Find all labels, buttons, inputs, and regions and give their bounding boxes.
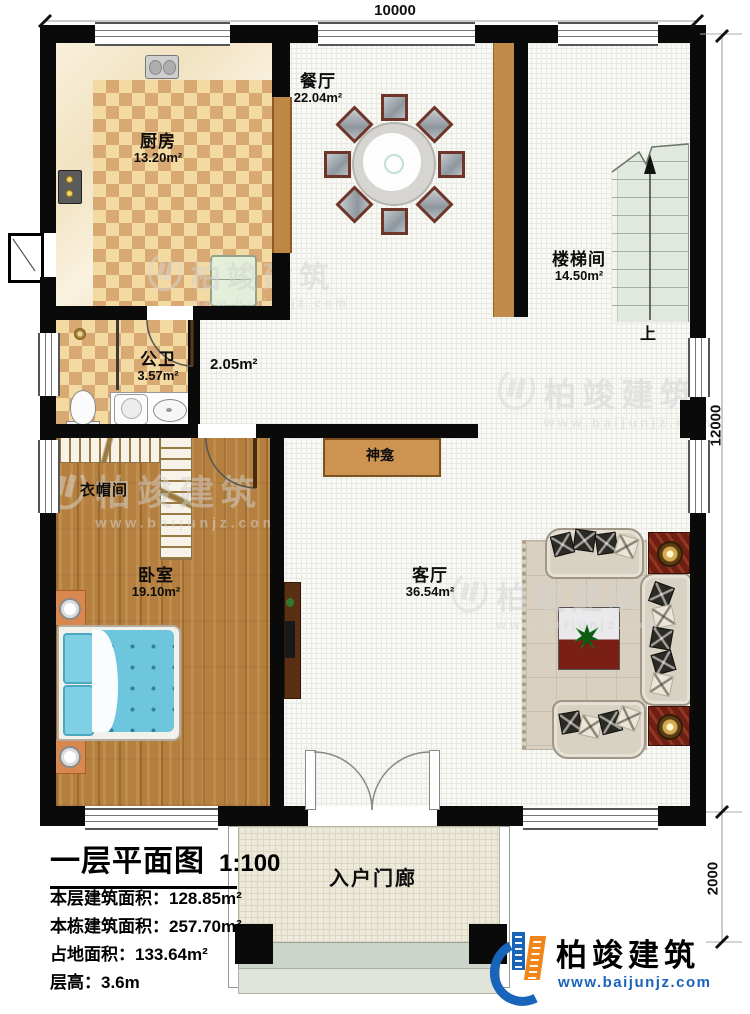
room-label-bedroom: 卧室 19.10m² (116, 566, 196, 600)
toilet-bowl (70, 390, 96, 425)
window (318, 22, 475, 46)
wall-pier (680, 400, 690, 438)
kitchen-sink (145, 55, 179, 79)
flue-box (8, 233, 44, 283)
room-label-kitchen: 厨房 13.20m² (118, 132, 198, 166)
stat-line: 占地面积：133.64m² (50, 940, 208, 965)
nightstand-lamp-2 (59, 746, 81, 768)
table-lamp (657, 714, 683, 740)
staircase (612, 143, 689, 322)
brand-website: www.baijunjz.com (558, 974, 711, 991)
bed-pillow-2 (63, 685, 94, 736)
room-area: 36.54m² (390, 585, 470, 600)
wall-segment (690, 25, 706, 338)
wall-segment (218, 806, 308, 826)
stat-line: 本栋建筑面积：257.70m² (50, 912, 242, 937)
washing-machine (114, 394, 148, 425)
sink-drain (166, 408, 172, 412)
stat-line: 本层建筑面积：128.85m² (50, 884, 242, 909)
kitchen-sliding-door (272, 97, 292, 253)
wardrobe (160, 435, 192, 560)
hallway-area-label: 2.05m² (210, 357, 258, 374)
nightstand-1 (52, 590, 86, 626)
sofa-pillow (573, 529, 597, 553)
wall-segment (690, 513, 706, 826)
window (38, 333, 60, 396)
washer-door (121, 398, 142, 419)
room-name: 公卫 (120, 350, 196, 369)
stairs-up-label: 上 (636, 326, 660, 344)
drawing-scale: 1:100 (219, 850, 280, 878)
wall-bedroom-east (270, 438, 284, 806)
room-label-dining: 餐厅 22.04m² (278, 72, 358, 106)
wall-segment (437, 806, 523, 826)
bed-pillow-1 (63, 633, 94, 684)
bathroom-door-threshold (147, 306, 193, 320)
room-area: 3.57m² (120, 369, 196, 384)
dimension-bottom-right: 2000 (705, 844, 722, 914)
room-label-bathroom: 公卫 3.57m² (120, 350, 196, 384)
sink-bowl-left (149, 60, 162, 75)
sofa-pillow (649, 626, 673, 650)
drawing-title: 一层平面图 (50, 836, 205, 880)
drawing-title-row: 一层平面图 1:100 (50, 836, 280, 880)
stove-burner-2 (65, 189, 74, 198)
room-area: 19.10m² (116, 585, 196, 600)
window (85, 808, 218, 830)
shower-drain (74, 328, 86, 340)
side-table-top (648, 532, 690, 574)
wall-living-west (256, 424, 478, 438)
wall-kitchen-south (56, 306, 147, 320)
clothes-rack (58, 435, 162, 463)
dimension-tick (716, 806, 728, 818)
wall-stairwell-west (514, 43, 528, 317)
wall-segment (475, 25, 558, 43)
dining-chair-n (381, 94, 408, 121)
tv-cabinet (284, 582, 301, 699)
sink-bowl-right (163, 60, 176, 75)
refrigerator (210, 255, 257, 307)
stove-burner-1 (65, 175, 74, 184)
shower-partition (116, 320, 119, 390)
wall-segment (40, 806, 85, 826)
nightstand-lamp-1 (59, 598, 81, 620)
room-label-living: 客厅 36.54m² (390, 566, 470, 600)
window (558, 22, 658, 46)
porch-step-2 (238, 968, 500, 994)
wall-segment (40, 513, 56, 826)
dimension-top: 10000 (345, 2, 445, 19)
dimension-tick (716, 30, 728, 42)
wall-kitchen-east (272, 253, 290, 306)
fridge-divider (212, 279, 251, 280)
stat-line: 层高：3.6m (50, 968, 140, 993)
wall-bathroom-south (40, 424, 198, 438)
entry-door-leaf-left (305, 750, 316, 810)
window (38, 440, 60, 513)
room-area: 22.04m² (278, 91, 358, 106)
room-name: 厨房 (118, 132, 198, 151)
wall-segment (40, 25, 56, 233)
table-lamp (657, 541, 683, 567)
dimension-right: 12000 (708, 391, 725, 461)
dining-table-center (384, 154, 404, 174)
wall-segment (658, 806, 706, 826)
brand-company: 柏竣建筑 (556, 930, 700, 975)
room-name: 楼梯间 (536, 250, 622, 269)
dining-chair-e (438, 151, 465, 178)
window (688, 338, 710, 397)
window (95, 22, 230, 46)
brand-logo: 柏竣建筑 www.baijunjz.com (488, 928, 748, 1004)
wall-segment (40, 277, 56, 333)
porch-step-1 (238, 942, 500, 970)
bathroom-sink (153, 399, 187, 422)
dining-chair-w (324, 151, 351, 178)
tv (285, 621, 295, 658)
sofa-pillow (651, 604, 676, 629)
bed (57, 625, 181, 741)
wood-screen (493, 43, 516, 317)
floor-plan-canvas: 柏竣建筑 www.baijunjz.com 柏竣建筑 www.baijunjz.… (0, 0, 750, 1014)
nightstand-2 (52, 738, 86, 774)
logo-building-blue (512, 932, 525, 970)
wall-segment (230, 25, 318, 43)
room-name: 客厅 (390, 566, 470, 585)
wall-kitchen-south (193, 306, 290, 320)
window (523, 808, 658, 830)
dining-chair-s (381, 208, 408, 235)
cabinet-plant (286, 598, 294, 607)
room-label-cloakroom: 衣帽间 (64, 483, 144, 500)
shrine-label: 神龛 (344, 448, 416, 464)
room-name: 卧室 (116, 566, 196, 585)
room-area: 13.20m² (118, 151, 198, 166)
sofa-pillow (649, 672, 674, 697)
entry-door-leaf-right (429, 750, 440, 810)
room-name: 餐厅 (278, 72, 358, 91)
side-table-bottom (648, 706, 690, 746)
wall-segment (690, 397, 706, 440)
entry-threshold (308, 806, 437, 826)
room-label-stairwell: 楼梯间 14.50m² (536, 250, 622, 284)
kitchen-stove (58, 170, 82, 204)
porch-label: 入户门廊 (288, 868, 458, 890)
bedroom-door-threshold (198, 424, 256, 438)
title-block: 一层平面图 1:100 (50, 836, 280, 889)
room-area: 14.50m² (536, 269, 622, 284)
